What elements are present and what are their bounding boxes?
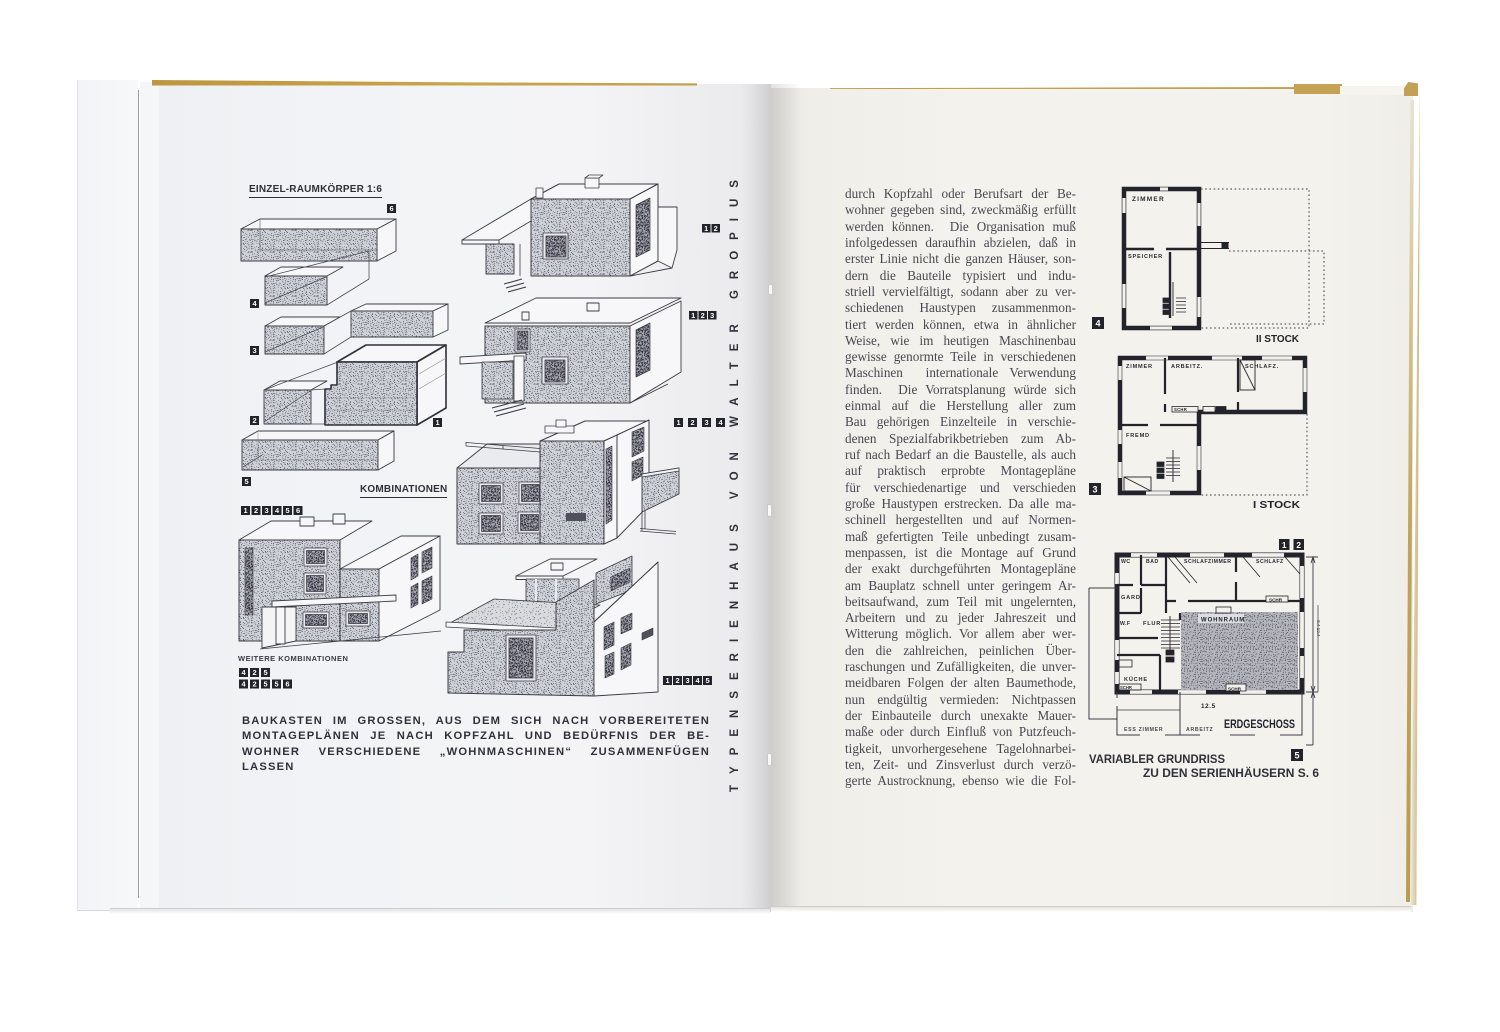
svg-text:1: 1 [1282,540,1287,550]
svg-text:2: 2 [254,506,258,515]
svg-text:1: 1 [691,311,695,320]
svg-text:SPEICHER: SPEICHER [1128,254,1163,260]
svg-text:SCHR: SCHR [1120,685,1132,690]
svg-text:ZU DEN SERIENHÄUSERN S. 6: ZU DEN SERIENHÄUSERN S. 6 [1143,767,1319,780]
svg-text:SCHLAFZ: SCHLAFZ [1256,559,1284,565]
svg-text:ARBEITZ: ARBEITZ [1186,727,1214,733]
svg-text:2: 2 [252,668,256,677]
svg-text:ERDGESCHOSS: ERDGESCHOSS [1224,719,1295,731]
svg-text:SCHR: SCHR [1228,687,1242,692]
svg-text:4: 4 [1095,319,1100,329]
svg-text:5: 5 [244,477,248,486]
svg-text:5: 5 [263,668,267,677]
svg-text:1: 1 [704,224,708,233]
svg-text:FLUR: FLUR [1143,621,1161,627]
svg-text:2: 2 [675,676,679,685]
svg-text:ARBEITZ.: ARBEITZ. [1171,364,1203,370]
svg-text:5: 5 [705,676,709,685]
svg-text:KÜCHE: KÜCHE [1124,676,1148,683]
svg-text:W.F: W.F [1120,621,1130,627]
svg-text:I STOCK: I STOCK [1253,499,1300,511]
svg-text:WC: WC [1121,559,1131,565]
svg-text:ZIMMER: ZIMMER [1132,196,1165,203]
svg-text:SCHLAFZIMMER: SCHLAFZIMMER [1184,559,1232,565]
svg-text:1: 1 [676,418,680,427]
svg-text:SCHR: SCHR [1174,407,1187,412]
svg-text:1: 1 [435,418,439,427]
svg-text:5: 5 [263,680,267,689]
svg-text:SCHR: SCHR [1269,598,1283,603]
svg-text:3: 3 [710,311,714,320]
svg-text:2: 2 [690,418,694,427]
svg-text:3: 3 [252,346,256,355]
svg-text:6: 6 [285,680,289,689]
svg-text:1: 1 [243,506,247,515]
svg-text:6: 6 [296,506,300,515]
svg-text:BAD: BAD [1146,559,1159,565]
svg-text:3: 3 [264,506,268,515]
svg-text:3: 3 [685,676,689,685]
svg-text:9.4 12.4: 9.4 12.4 [1316,620,1321,637]
svg-text:5: 5 [1294,751,1299,761]
svg-text:6: 6 [389,204,393,213]
svg-text:12.5: 12.5 [1201,703,1216,710]
svg-text:ZIMMER: ZIMMER [1126,364,1153,370]
svg-text:2: 2 [701,311,705,320]
svg-text:2: 2 [252,416,256,425]
svg-text:WOHNRAUM: WOHNRAUM [1201,618,1245,624]
svg-text:SCHLAFZ.: SCHLAFZ. [1245,364,1279,370]
svg-text:2: 2 [1296,540,1301,550]
svg-text:II STOCK: II STOCK [1256,333,1299,345]
svg-text:VARIABLER GRUNDRISS: VARIABLER GRUNDRISS [1089,754,1225,766]
svg-text:2: 2 [714,224,718,233]
svg-text:5: 5 [274,680,278,689]
svg-text:2: 2 [252,680,256,689]
svg-text:1: 1 [665,676,669,685]
svg-text:FREMD: FREMD [1126,433,1150,439]
svg-text:ESS ZIMMER: ESS ZIMMER [1124,727,1163,733]
svg-text:GARD: GARD [1121,595,1141,601]
svg-text:3: 3 [1092,485,1097,495]
svg-text:3: 3 [704,418,708,427]
svg-text:5: 5 [285,506,289,515]
